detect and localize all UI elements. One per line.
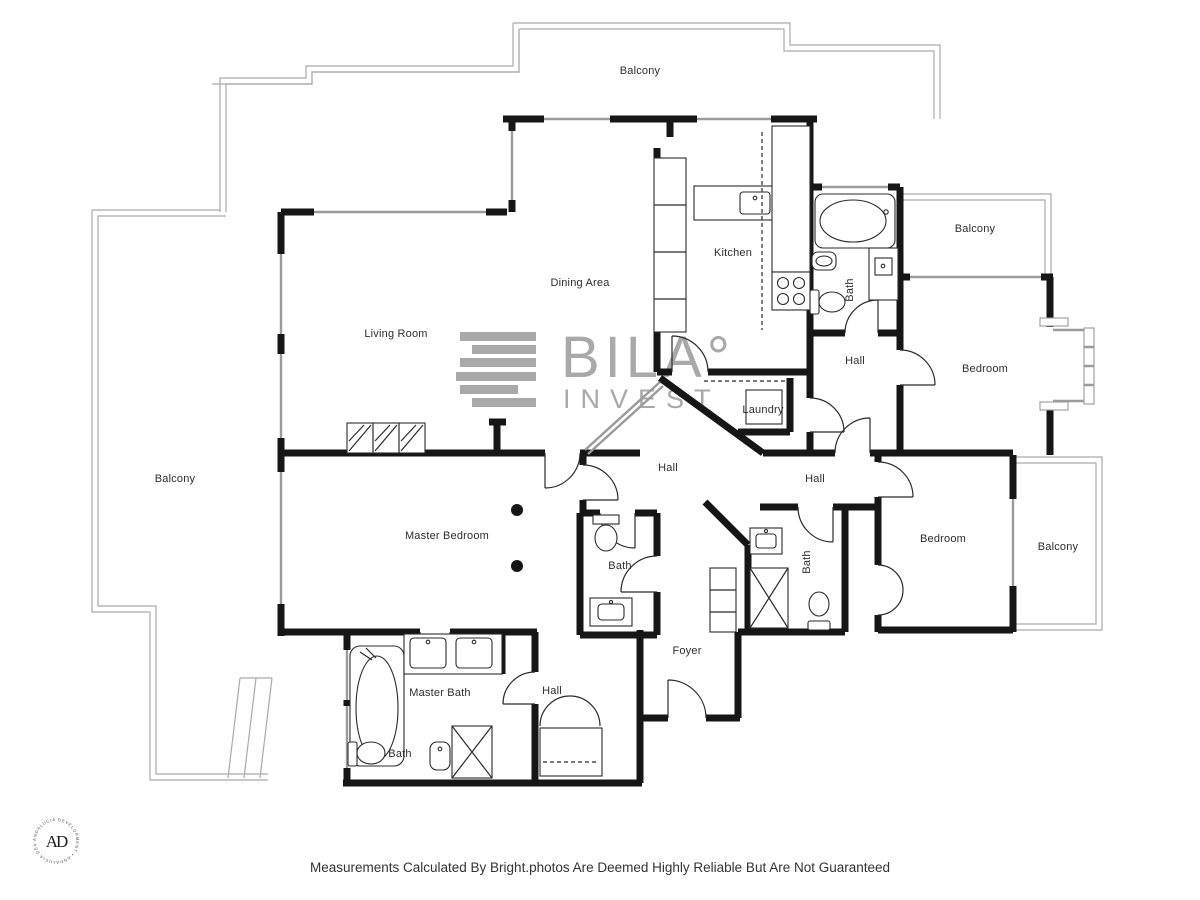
room-label-bath-bottom-left: Bath [388, 748, 411, 760]
bay-window [1040, 318, 1094, 410]
vanity-guest [869, 248, 898, 300]
room-label-hall-corridor: Hall [805, 473, 825, 485]
badge-monogram: AD [46, 832, 68, 851]
fireplace-hatch [347, 423, 425, 453]
room-label-laundry: Laundry [742, 404, 783, 416]
shelves-foyer [710, 568, 736, 632]
room-label-hall-bottom: Hall [542, 685, 562, 697]
badge-ring-text: ANDALUCIA DEVELOPMENT • ANDALUCIA DEVELO… [0, 0, 80, 865]
room-label-hall-top-right: Hall [845, 355, 865, 367]
vanity-master [404, 634, 502, 674]
room-label-living-room: Living Room [364, 328, 427, 340]
room-label-balcony-bottom-right: Balcony [1038, 541, 1079, 553]
floorplan-svg: BILA° INVEST [0, 0, 1200, 900]
disclaimer-text: Measurements Calculated By Bright.photos… [310, 860, 890, 875]
toilet-center [593, 515, 619, 551]
column-dot [511, 504, 523, 516]
room-label-master-bedroom: Master Bedroom [405, 530, 489, 542]
room-label-bedroom-bottom-right: Bedroom [920, 533, 966, 545]
room-label-dining-area: Dining Area [550, 277, 610, 289]
sink-guest [812, 252, 836, 270]
room-label-balcony-top: Balcony [620, 65, 661, 77]
toilet-right-bath [808, 592, 830, 630]
bathtub-guest [815, 194, 895, 248]
room-label-foyer: Foyer [672, 645, 701, 657]
shower-master [452, 726, 492, 778]
room-label-bath-right: Bath [801, 550, 813, 573]
shower-right-bath [750, 568, 788, 628]
closet-hall [540, 728, 602, 776]
room-label-bath-center: Bath [608, 560, 631, 572]
watermark-mark-icon [456, 332, 536, 407]
developer-badge: ANDALUCIA DEVELOPMENT • ANDALUCIA DEVELO… [0, 0, 80, 865]
stove [772, 272, 810, 310]
chimney [228, 678, 272, 778]
toilet-master [348, 742, 385, 766]
bidet-master [430, 742, 450, 770]
watermark-brand-text: BILA° [561, 325, 735, 390]
room-label-master-bath: Master Bath [409, 687, 471, 699]
room-label-hall-center: Hall [658, 462, 678, 474]
column-dot [511, 560, 523, 572]
sink-center [590, 598, 632, 626]
room-label-bedroom-top-right: Bedroom [962, 363, 1008, 375]
room-label-kitchen: Kitchen [714, 247, 752, 259]
room-label-bath-top-right: Bath [844, 278, 856, 301]
toilet-guest [810, 290, 845, 314]
room-label-balcony-top-right: Balcony [955, 223, 996, 235]
sink-right-bath [750, 528, 782, 554]
room-label-balcony-left: Balcony [155, 473, 196, 485]
